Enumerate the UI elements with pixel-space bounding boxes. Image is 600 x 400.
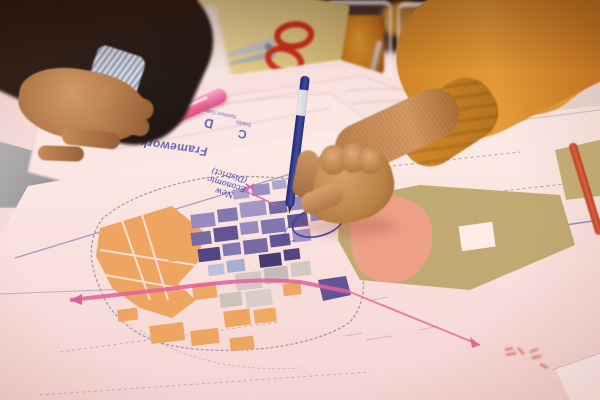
- khaki-zone-hole: [458, 222, 495, 251]
- knuckle: [358, 147, 382, 174]
- left-hand-finger: [38, 145, 84, 162]
- photo-canvas: Framework Northern Gateway D Saadia C Ne…: [0, 0, 600, 400]
